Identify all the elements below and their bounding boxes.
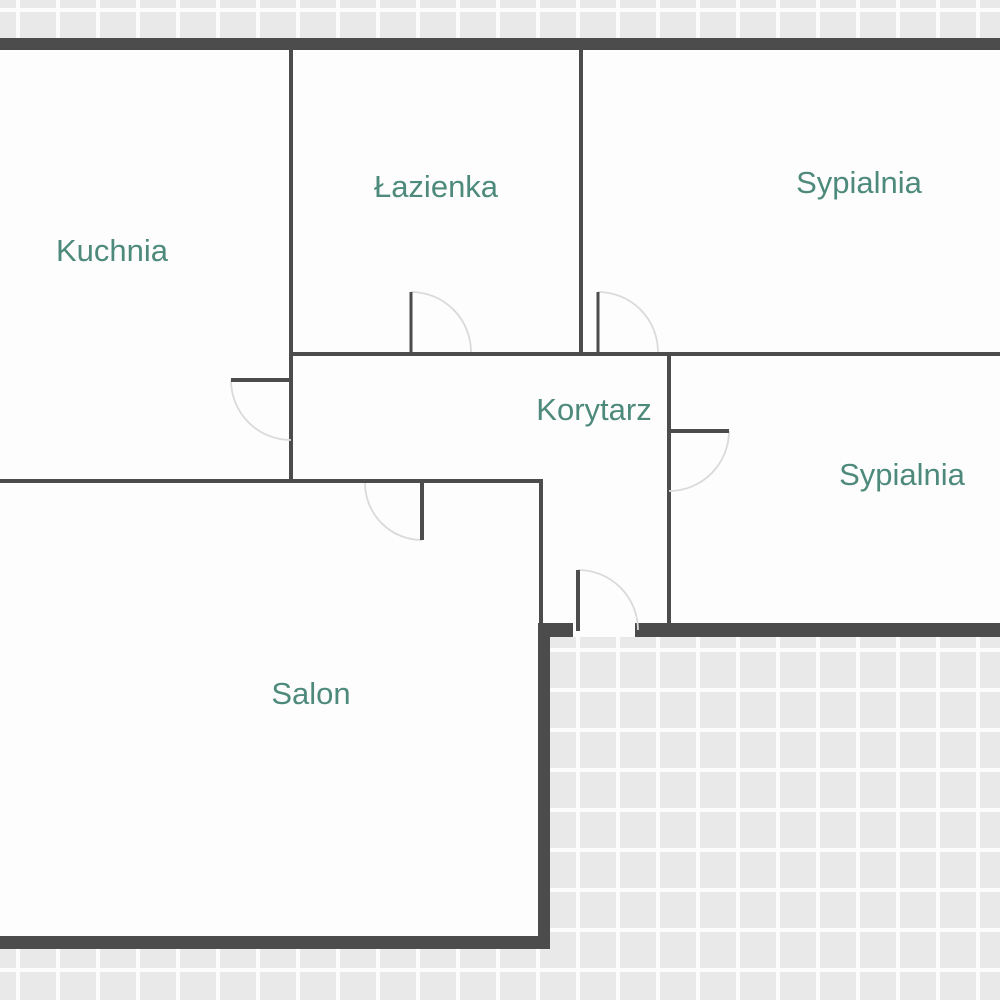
- svg-text:Sypialnia: Sypialnia: [839, 457, 966, 492]
- svg-text:Łazienka: Łazienka: [374, 169, 499, 204]
- svg-text:Salon: Salon: [271, 676, 350, 711]
- svg-text:Sypialnia: Sypialnia: [796, 165, 923, 200]
- svg-text:Kuchnia: Kuchnia: [56, 233, 169, 268]
- svg-text:Korytarz: Korytarz: [536, 392, 651, 427]
